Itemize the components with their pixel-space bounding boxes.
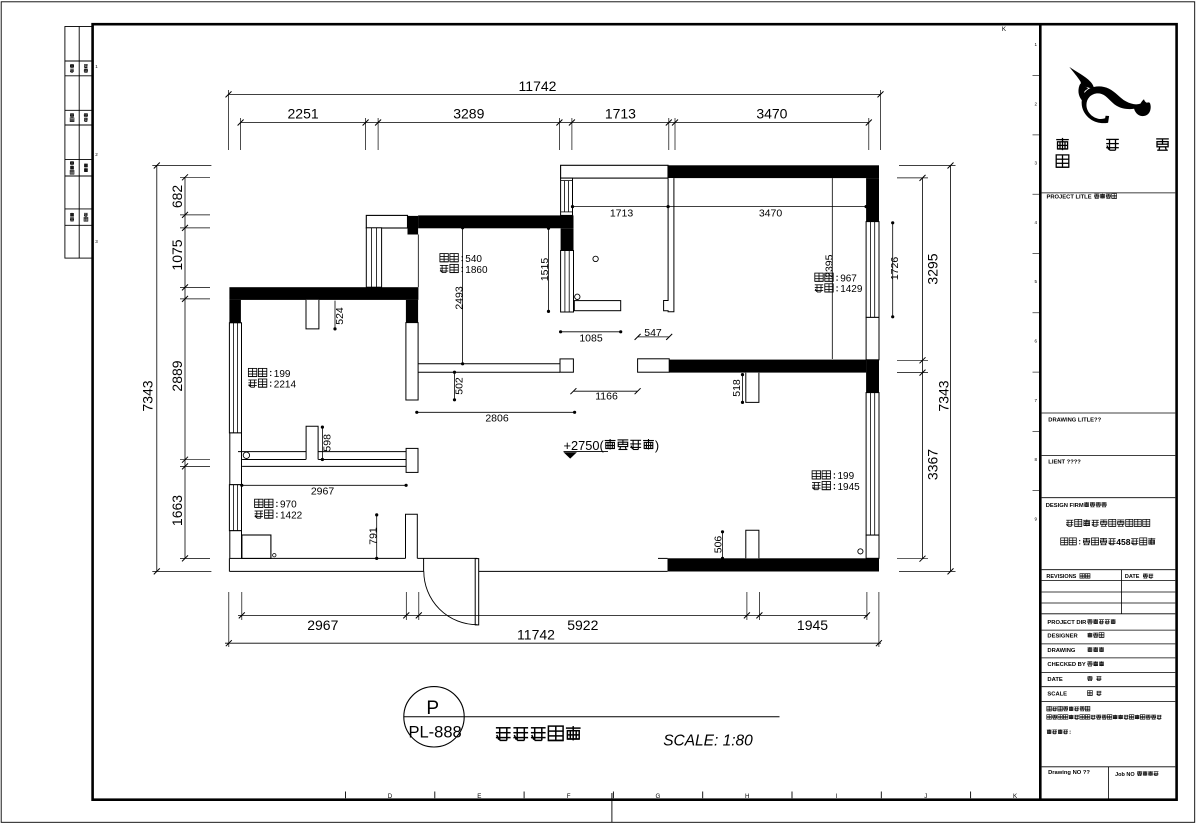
- svg-text:1713: 1713: [605, 106, 636, 122]
- svg-text:REVISIONS: REVISIONS: [1046, 574, 1079, 580]
- svg-text:1515: 1515: [539, 258, 551, 282]
- svg-text:506: 506: [712, 536, 724, 554]
- svg-text:11742: 11742: [517, 627, 555, 643]
- svg-text:I: I: [836, 793, 838, 800]
- svg-text:Job NO: Job NO: [1115, 772, 1138, 778]
- svg-text:524: 524: [334, 307, 346, 325]
- svg-text:): ): [655, 438, 659, 453]
- svg-text:PL-888: PL-888: [408, 724, 461, 742]
- svg-text:3470: 3470: [759, 208, 783, 220]
- svg-text:SCALE: SCALE: [1047, 692, 1067, 698]
- svg-text:CHECKED BY: CHECKED BY: [1047, 662, 1085, 668]
- svg-text:1075: 1075: [169, 239, 185, 270]
- svg-text:1085: 1085: [579, 332, 603, 344]
- svg-text:1166: 1166: [595, 391, 618, 403]
- svg-text:DATE: DATE: [1047, 677, 1062, 683]
- svg-text:+2750(: +2750(: [564, 438, 605, 453]
- svg-text:7343: 7343: [139, 380, 155, 411]
- svg-text:598: 598: [321, 434, 333, 452]
- svg-text:SCALE: 1:80: SCALE: 1:80: [663, 733, 753, 750]
- svg-text:D: D: [388, 793, 393, 800]
- svg-text:1429: 1429: [840, 284, 863, 295]
- svg-text:DESIGN FIRM: DESIGN FIRM: [1046, 503, 1084, 509]
- svg-text:3295: 3295: [925, 253, 941, 284]
- svg-text:P: P: [426, 698, 439, 719]
- svg-text:3367: 3367: [925, 449, 941, 480]
- svg-text:2806: 2806: [485, 413, 509, 425]
- svg-text:H: H: [745, 793, 749, 800]
- svg-text:967: 967: [840, 274, 857, 285]
- svg-text:2214: 2214: [274, 379, 297, 390]
- svg-text:540: 540: [465, 254, 482, 265]
- svg-text:2395: 2395: [824, 254, 836, 278]
- svg-text:2251: 2251: [288, 106, 319, 122]
- svg-text:199: 199: [838, 471, 855, 482]
- svg-text:1860: 1860: [465, 265, 488, 276]
- svg-text:DESIGNER: DESIGNER: [1047, 634, 1078, 640]
- svg-text:3470: 3470: [756, 106, 787, 122]
- svg-text:791: 791: [367, 527, 379, 545]
- svg-text:458: 458: [1116, 537, 1130, 547]
- svg-text:F: F: [567, 793, 571, 800]
- svg-text:3289: 3289: [453, 106, 484, 122]
- svg-text:E: E: [477, 793, 481, 800]
- svg-text:970: 970: [280, 500, 297, 511]
- svg-text:682: 682: [169, 185, 185, 209]
- svg-text:PROJECT LITLE: PROJECT LITLE: [1047, 195, 1095, 201]
- svg-text:G: G: [655, 793, 660, 800]
- svg-text:DATE: DATE: [1125, 574, 1143, 580]
- svg-text:502: 502: [453, 377, 465, 395]
- svg-text:11742: 11742: [519, 78, 557, 94]
- svg-text:1713: 1713: [610, 208, 634, 220]
- svg-text:DRAWING: DRAWING: [1047, 648, 1076, 654]
- svg-text:1945: 1945: [838, 482, 861, 493]
- svg-text:518: 518: [731, 379, 743, 397]
- svg-text:199: 199: [274, 369, 291, 380]
- svg-text:547: 547: [644, 327, 662, 339]
- svg-text:1422: 1422: [280, 510, 303, 521]
- svg-text:2967: 2967: [311, 485, 335, 497]
- svg-text:7343: 7343: [936, 380, 952, 411]
- svg-text:2889: 2889: [169, 360, 185, 391]
- svg-text:1945: 1945: [797, 617, 828, 633]
- svg-text:LIENT ????: LIENT ????: [1048, 460, 1081, 466]
- svg-text:1663: 1663: [169, 495, 185, 526]
- svg-text:J: J: [924, 793, 927, 800]
- svg-text:2967: 2967: [307, 617, 338, 633]
- svg-text:Drawing NO ??: Drawing NO ??: [1048, 770, 1090, 776]
- svg-text:2493: 2493: [453, 286, 465, 310]
- svg-text:DRAWING LITLE??: DRAWING LITLE??: [1048, 418, 1101, 424]
- svg-text:5922: 5922: [567, 617, 598, 633]
- svg-text:PROJECT DIR: PROJECT DIR: [1047, 620, 1087, 626]
- svg-text:1726: 1726: [889, 257, 901, 281]
